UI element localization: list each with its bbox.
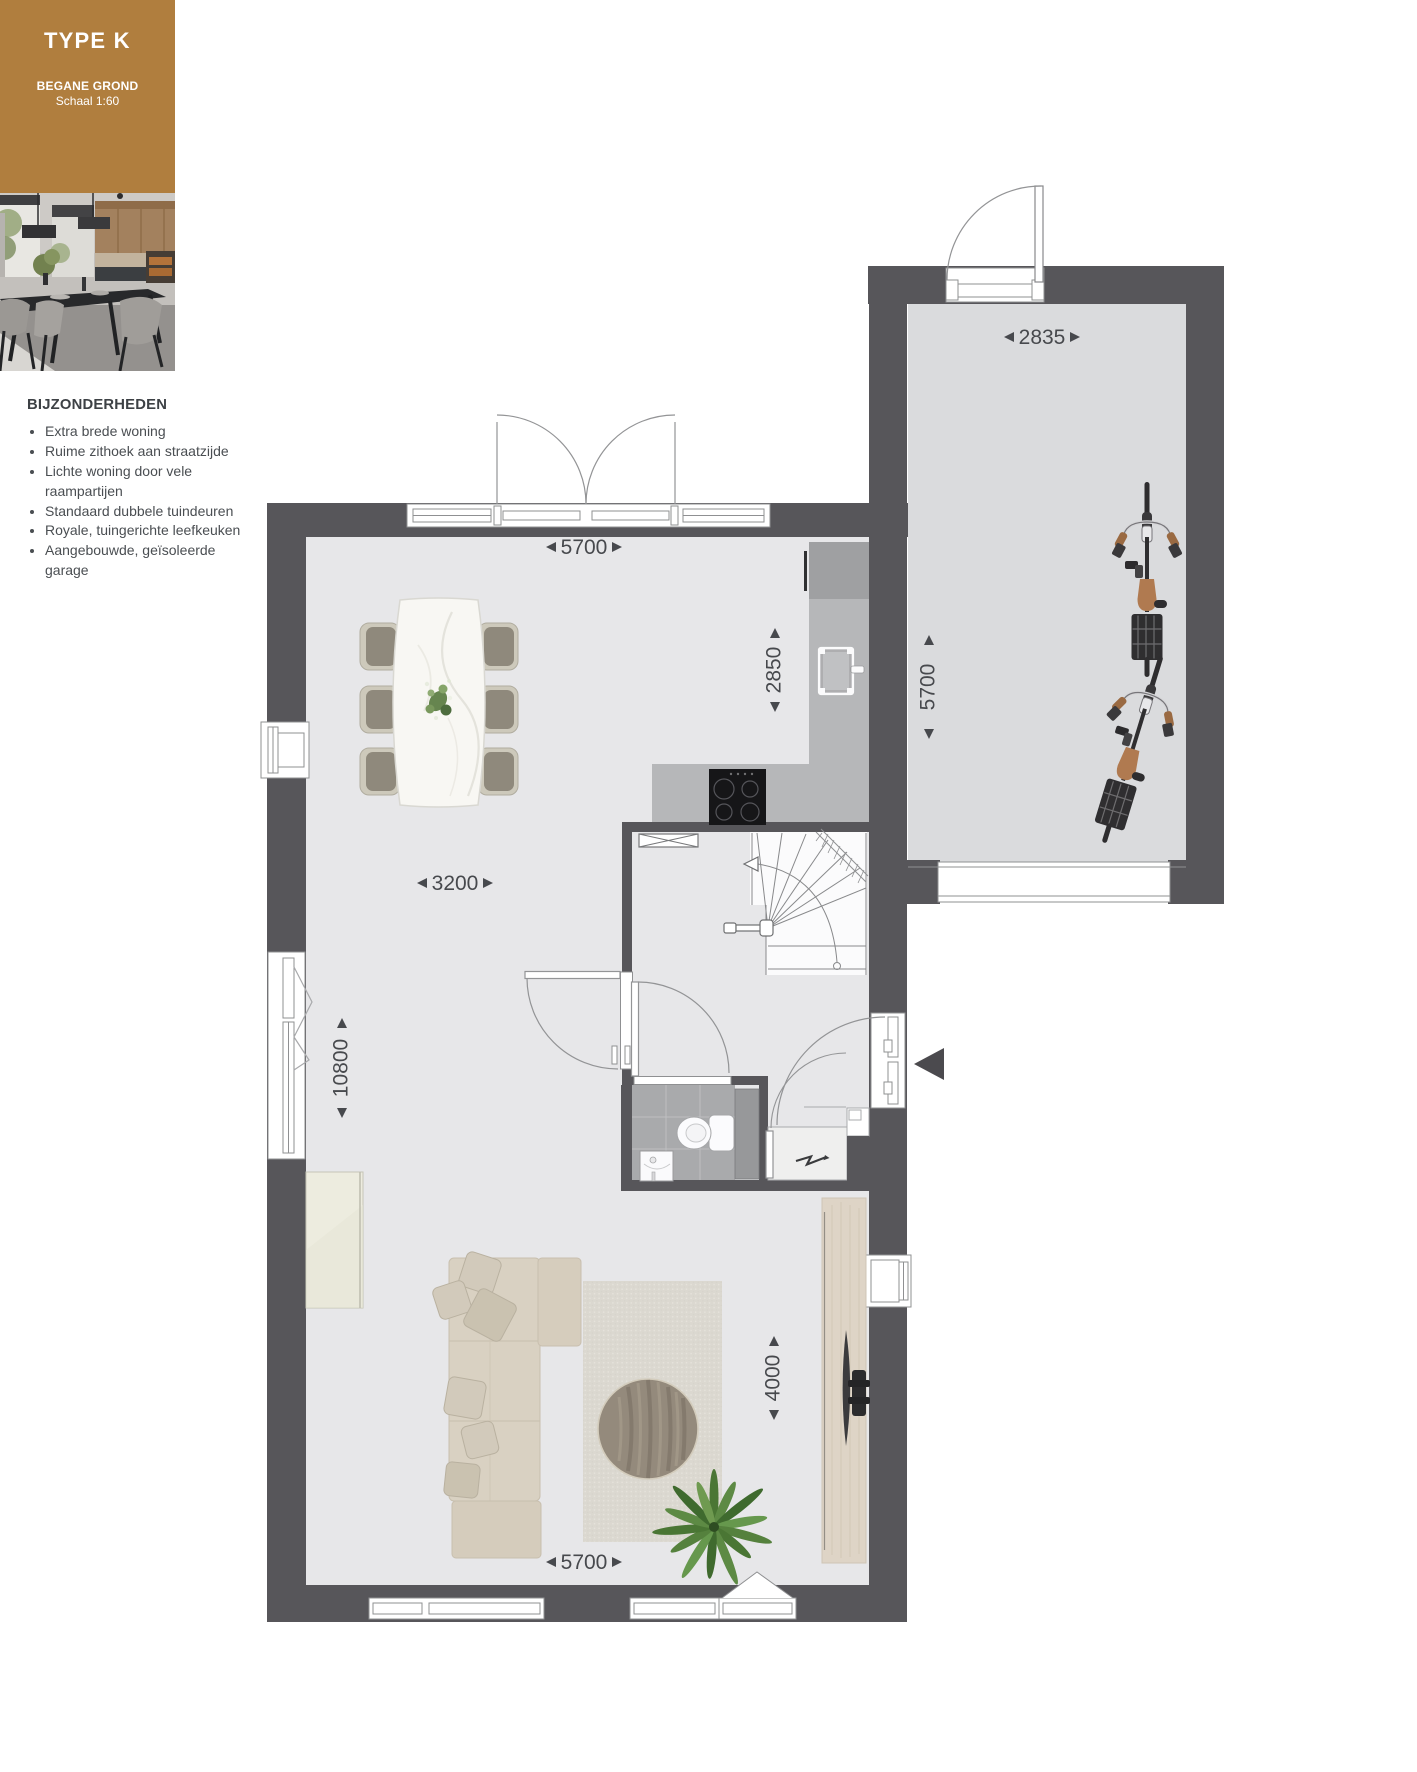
- svg-text:3200: 3200: [432, 872, 479, 895]
- svg-text:5700: 5700: [561, 536, 608, 559]
- svg-text:2835: 2835: [1019, 326, 1066, 349]
- svg-text:2850: 2850: [763, 647, 786, 694]
- svg-text:10800: 10800: [330, 1039, 353, 1097]
- svg-text:4000: 4000: [762, 1355, 785, 1402]
- svg-text:5700: 5700: [561, 1551, 608, 1574]
- svg-text:5700: 5700: [917, 664, 940, 711]
